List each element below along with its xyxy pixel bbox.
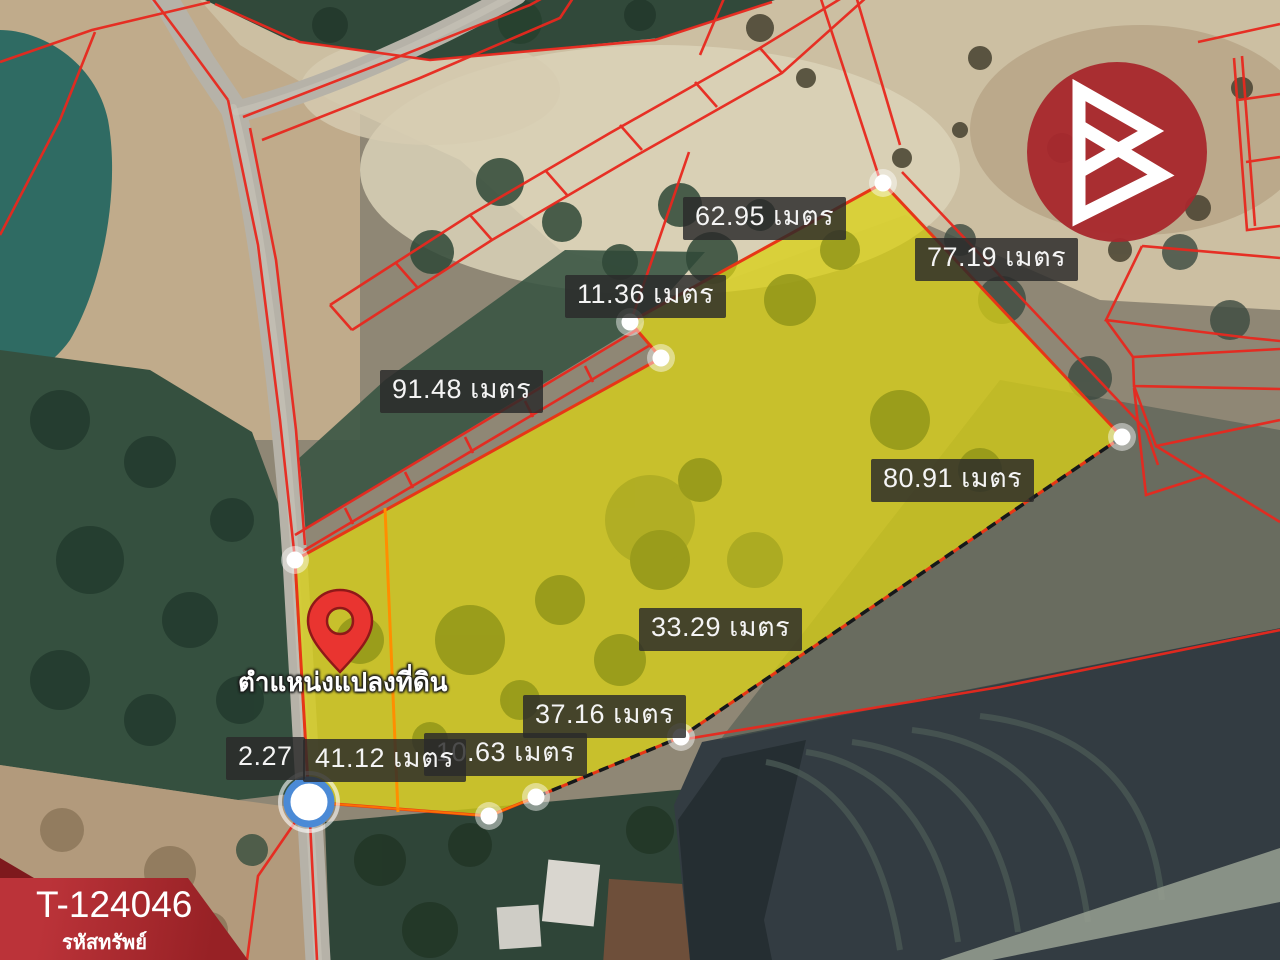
measure-label-south-left: 41.12 เมตร — [303, 739, 466, 782]
property-code-caption: รหัสทรัพย์ — [62, 926, 147, 958]
pin-label: ตำแหน่งแปลงที่ดิน — [238, 662, 448, 703]
measure-label-south-right: 37.16 เมตร — [523, 695, 686, 738]
brand-logo-icon — [1027, 62, 1207, 242]
measure-label-right-upper: 77.19 เมตร — [915, 238, 1078, 281]
house-roof-white — [542, 859, 600, 926]
measure-label-top: 62.95 เมตร — [683, 197, 846, 240]
measure-label-southeast-upper: 80.91 เมตร — [871, 459, 1034, 502]
measure-label-north-jog: 11.36 เมตร — [565, 275, 726, 318]
measure-label-corner-small: 2.27 — [226, 737, 305, 780]
measure-label-northwest: 91.48 เมตร — [380, 370, 543, 413]
brand-logo — [1027, 62, 1207, 242]
measure-label-southeast-lower: 33.29 เมตร — [639, 608, 802, 651]
listing-map-image: 62.95 เมตร 77.19 เมตร 11.36 เมตร 91.48 เ… — [0, 0, 1280, 960]
property-code: T-124046 — [36, 884, 192, 926]
